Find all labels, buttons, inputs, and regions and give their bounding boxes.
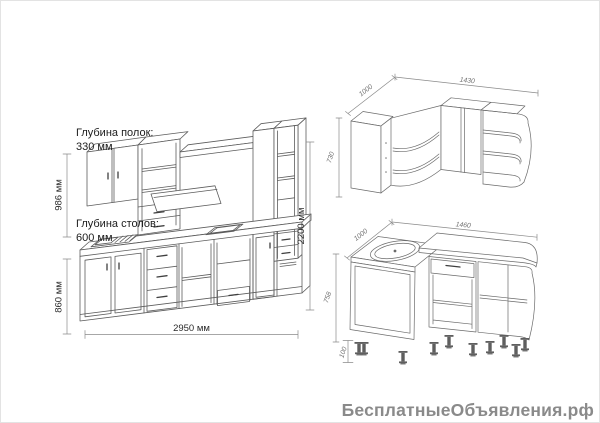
- counter-depth-label: Глубина столов:: [76, 218, 159, 230]
- counter-depth-value: 600 мм: [76, 232, 113, 244]
- straight-kitchen-elevation: Глубина полок: 330 мм Глубина столов: 60…: [54, 118, 315, 339]
- total-length-dim: 2950 мм: [173, 323, 210, 334]
- curved-shelves: [393, 132, 439, 174]
- wall-unit-side-panel: [351, 121, 381, 193]
- corner-base-unit-drawing: 1000 1460 758 100: [323, 219, 537, 364]
- leg-height-dim: 100: [338, 346, 348, 359]
- base-unit-length-dim: 1460: [455, 221, 471, 230]
- wall-unit-height-dim: 730: [326, 151, 336, 164]
- wall-unit-length-dim: 1430: [459, 77, 475, 86]
- base-unit-depth-dim: 1000: [353, 228, 369, 243]
- watermark: БесплатныеОбъявления.рф: [342, 400, 594, 421]
- corner-wall-unit-drawing: 1000 1430 730: [326, 74, 538, 197]
- shelf-depth-label: Глубина полок:: [76, 127, 153, 139]
- corner-open-section: [391, 106, 441, 170]
- upper-height-dim: 986 мм: [54, 179, 65, 211]
- drawing-canvas: Глубина полок: 330 мм Глубина столов: 60…: [0, 0, 600, 423]
- base-height-dim: 860 мм: [54, 281, 65, 313]
- kitchen-technical-drawing: Глубина полок: 330 мм Глубина столов: 60…: [1, 1, 600, 423]
- wall-unit-depth-dim: 1000: [358, 83, 374, 98]
- shelf-depth-value: 330 мм: [76, 141, 113, 153]
- wall-cabinet-doors: [87, 145, 138, 206]
- base-unit-height-dim: 758: [323, 291, 333, 304]
- total-height-dim: 2200 мм: [296, 208, 307, 245]
- base-cabinet-doors: [85, 253, 141, 317]
